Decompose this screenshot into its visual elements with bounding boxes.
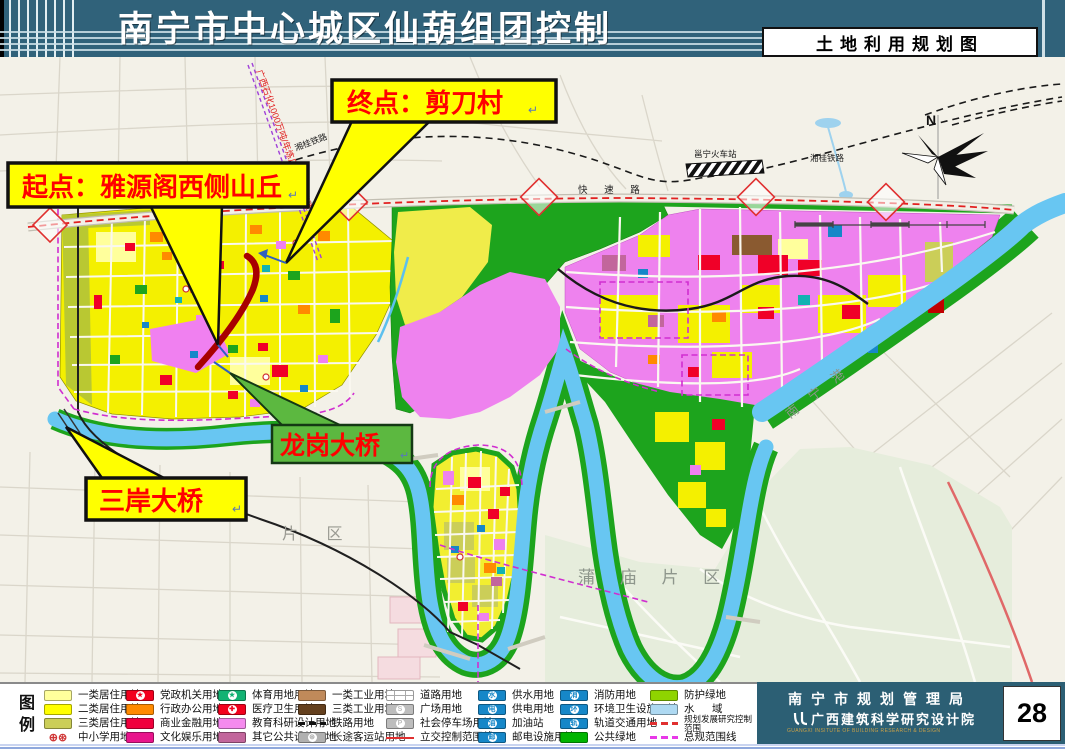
legend-label: 加油站 (512, 718, 544, 729)
svg-text:↵: ↵ (528, 103, 538, 117)
legend-label: 中小学用地 (78, 732, 131, 743)
legend-label: 轨道交通用地 (594, 718, 657, 729)
legend-label: 铁路用地 (332, 718, 374, 729)
institute-name: 广西建筑科学研究设计院 (765, 709, 1003, 729)
svg-text:↵: ↵ (400, 450, 409, 462)
page-number: 28 (1003, 686, 1061, 741)
land-use-map: 邕宁火车站 湘桂铁路 湘桂铁路 快 速 路 广西石化1000万吨/年炼厂成品油管… (0, 57, 1065, 682)
industrial-brown-block (732, 235, 772, 255)
legend-swatch-fill-icon (44, 718, 72, 729)
legend-swatch-icon-icon: ⊕⊛ (44, 732, 72, 743)
north-label: N (926, 112, 936, 128)
legend-swatch-sym-icon: 轨 (560, 718, 588, 729)
legend-label: 防护绿地 (684, 690, 726, 701)
legend-swatch-dash-icon (650, 718, 678, 729)
legend-swatch-fill-icon (44, 704, 72, 715)
legend-swatch-fill-icon (298, 690, 326, 701)
legend-label: 商业金融用地 (160, 718, 223, 729)
svg-text:↵: ↵ (232, 502, 242, 516)
legend-swatch-sym-icon: 环 (560, 704, 588, 715)
legend-swatch-sym-icon: S (386, 704, 414, 715)
legend-swatch-sym-icon: ★ (126, 690, 154, 701)
legend-swatch-road-icon (386, 690, 414, 701)
legend-label: 文化娱乐用地 (160, 732, 223, 743)
callout-start-text: 起点：雅源阁西侧山丘 (22, 172, 282, 202)
legend-swatch-line-icon (386, 732, 414, 743)
legend-swatch-sym-icon: P (386, 718, 414, 729)
legend-column-8: 防护绿地水 域规划发展研究控制范围总规范围线 (650, 689, 754, 745)
legend-swatch-sym-icon: 电 (478, 704, 506, 715)
legend-swatch-sym-icon: ⊛ (298, 732, 326, 743)
legend-label: 广场用地 (420, 704, 462, 715)
legend-label: 党政机关用地 (160, 690, 223, 701)
legend-swatch-fill-icon (218, 732, 246, 743)
legend-swatch-fill-icon (560, 732, 588, 743)
legend-swatch-sym-icon: 消 (560, 690, 588, 701)
institute-logo-icon (792, 711, 808, 729)
svg-text:↵: ↵ (288, 188, 298, 202)
railway-station-label: 邕宁火车站 (694, 149, 737, 159)
legend-item: 商业金融用地 (126, 717, 223, 730)
legend-label: 规划发展研究控制范围 (684, 715, 754, 733)
legend-columns: 一类居住用地二类居住用地三类居住用地⊕⊛中小学用地★党政机关用地行政办公用地商业… (0, 684, 757, 746)
legend-swatch-dash-icon (650, 732, 678, 743)
legend-label: 供水用地 (512, 690, 554, 701)
legend-swatch-fill-icon (126, 718, 154, 729)
legend-label: 行政办公用地 (160, 704, 223, 715)
legend-label: 公共绿地 (594, 732, 636, 743)
map-type-label: 土地利用规划图 (762, 27, 1038, 57)
legend-item: ★党政机关用地 (126, 689, 223, 702)
legend-swatch-sym-icon: ★ (218, 690, 246, 701)
district-partial-label: 片 区 (282, 525, 354, 543)
legend-item: 行政办公用地 (126, 703, 223, 716)
legend-swatch-fill-icon (650, 690, 678, 701)
legend-item: 防护绿地 (650, 689, 754, 702)
legend-swatch-fill-icon (126, 704, 154, 715)
expressway-label: 快 速 路 (578, 184, 647, 196)
legend-label: 道路用地 (420, 690, 462, 701)
legend-label: 供电用地 (512, 704, 554, 715)
legend-item: 规划发展研究控制范围 (650, 717, 754, 730)
legend-swatch-sym-icon: 油 (478, 718, 506, 729)
legend-swatch-dash-icon (298, 718, 326, 729)
legend-item: 文化娱乐用地 (126, 731, 223, 744)
institute-name-en: GUANGXI INSITUTE OF BUILDING RESEARCH & … (787, 728, 1003, 734)
legend-swatch-fill-icon (218, 718, 246, 729)
bottom-border (0, 744, 1065, 749)
legend-swatch-sym-icon: 水 (478, 690, 506, 701)
legend-swatch-fill-icon (650, 704, 678, 715)
map-area: 邕宁火车站 湘桂铁路 湘桂铁路 快 速 路 广西石化1000万吨/年炼厂成品油管… (0, 57, 1065, 682)
header-bar: 南宁市中心城区仙葫组团控制规划 土地利用规划图 (0, 0, 1065, 57)
agency-name: 南宁市规划管理局 (757, 689, 1003, 709)
planning-map-page: 南宁市中心城区仙葫组团控制规划 土地利用规划图 (0, 0, 1065, 749)
pumiao-label: 蒲 庙 片 区 (578, 568, 730, 587)
header-rule (1042, 0, 1045, 57)
legend-item: 总规范围线 (650, 731, 754, 744)
legend-label: 消防用地 (594, 690, 636, 701)
legend-swatch-fill-icon (126, 732, 154, 743)
legend-swatch-fill-icon (298, 704, 326, 715)
callout-sanan-text: 三岸大桥 (99, 486, 204, 516)
legend-column-2: ★党政机关用地行政办公用地商业金融用地文化娱乐用地 (126, 689, 223, 745)
railway-label-right: 湘桂铁路 (810, 153, 845, 163)
callout-end-text: 终点：剪刀村 (347, 88, 503, 118)
callout-longgang-text: 龙岗大桥 (280, 432, 380, 460)
legend-swatch-sym-icon: 邮 (478, 732, 506, 743)
legend-swatch-sym-icon: ✚ (218, 704, 246, 715)
legend-swatch-fill-icon (44, 690, 72, 701)
legend-label: 总规范围线 (684, 732, 737, 743)
